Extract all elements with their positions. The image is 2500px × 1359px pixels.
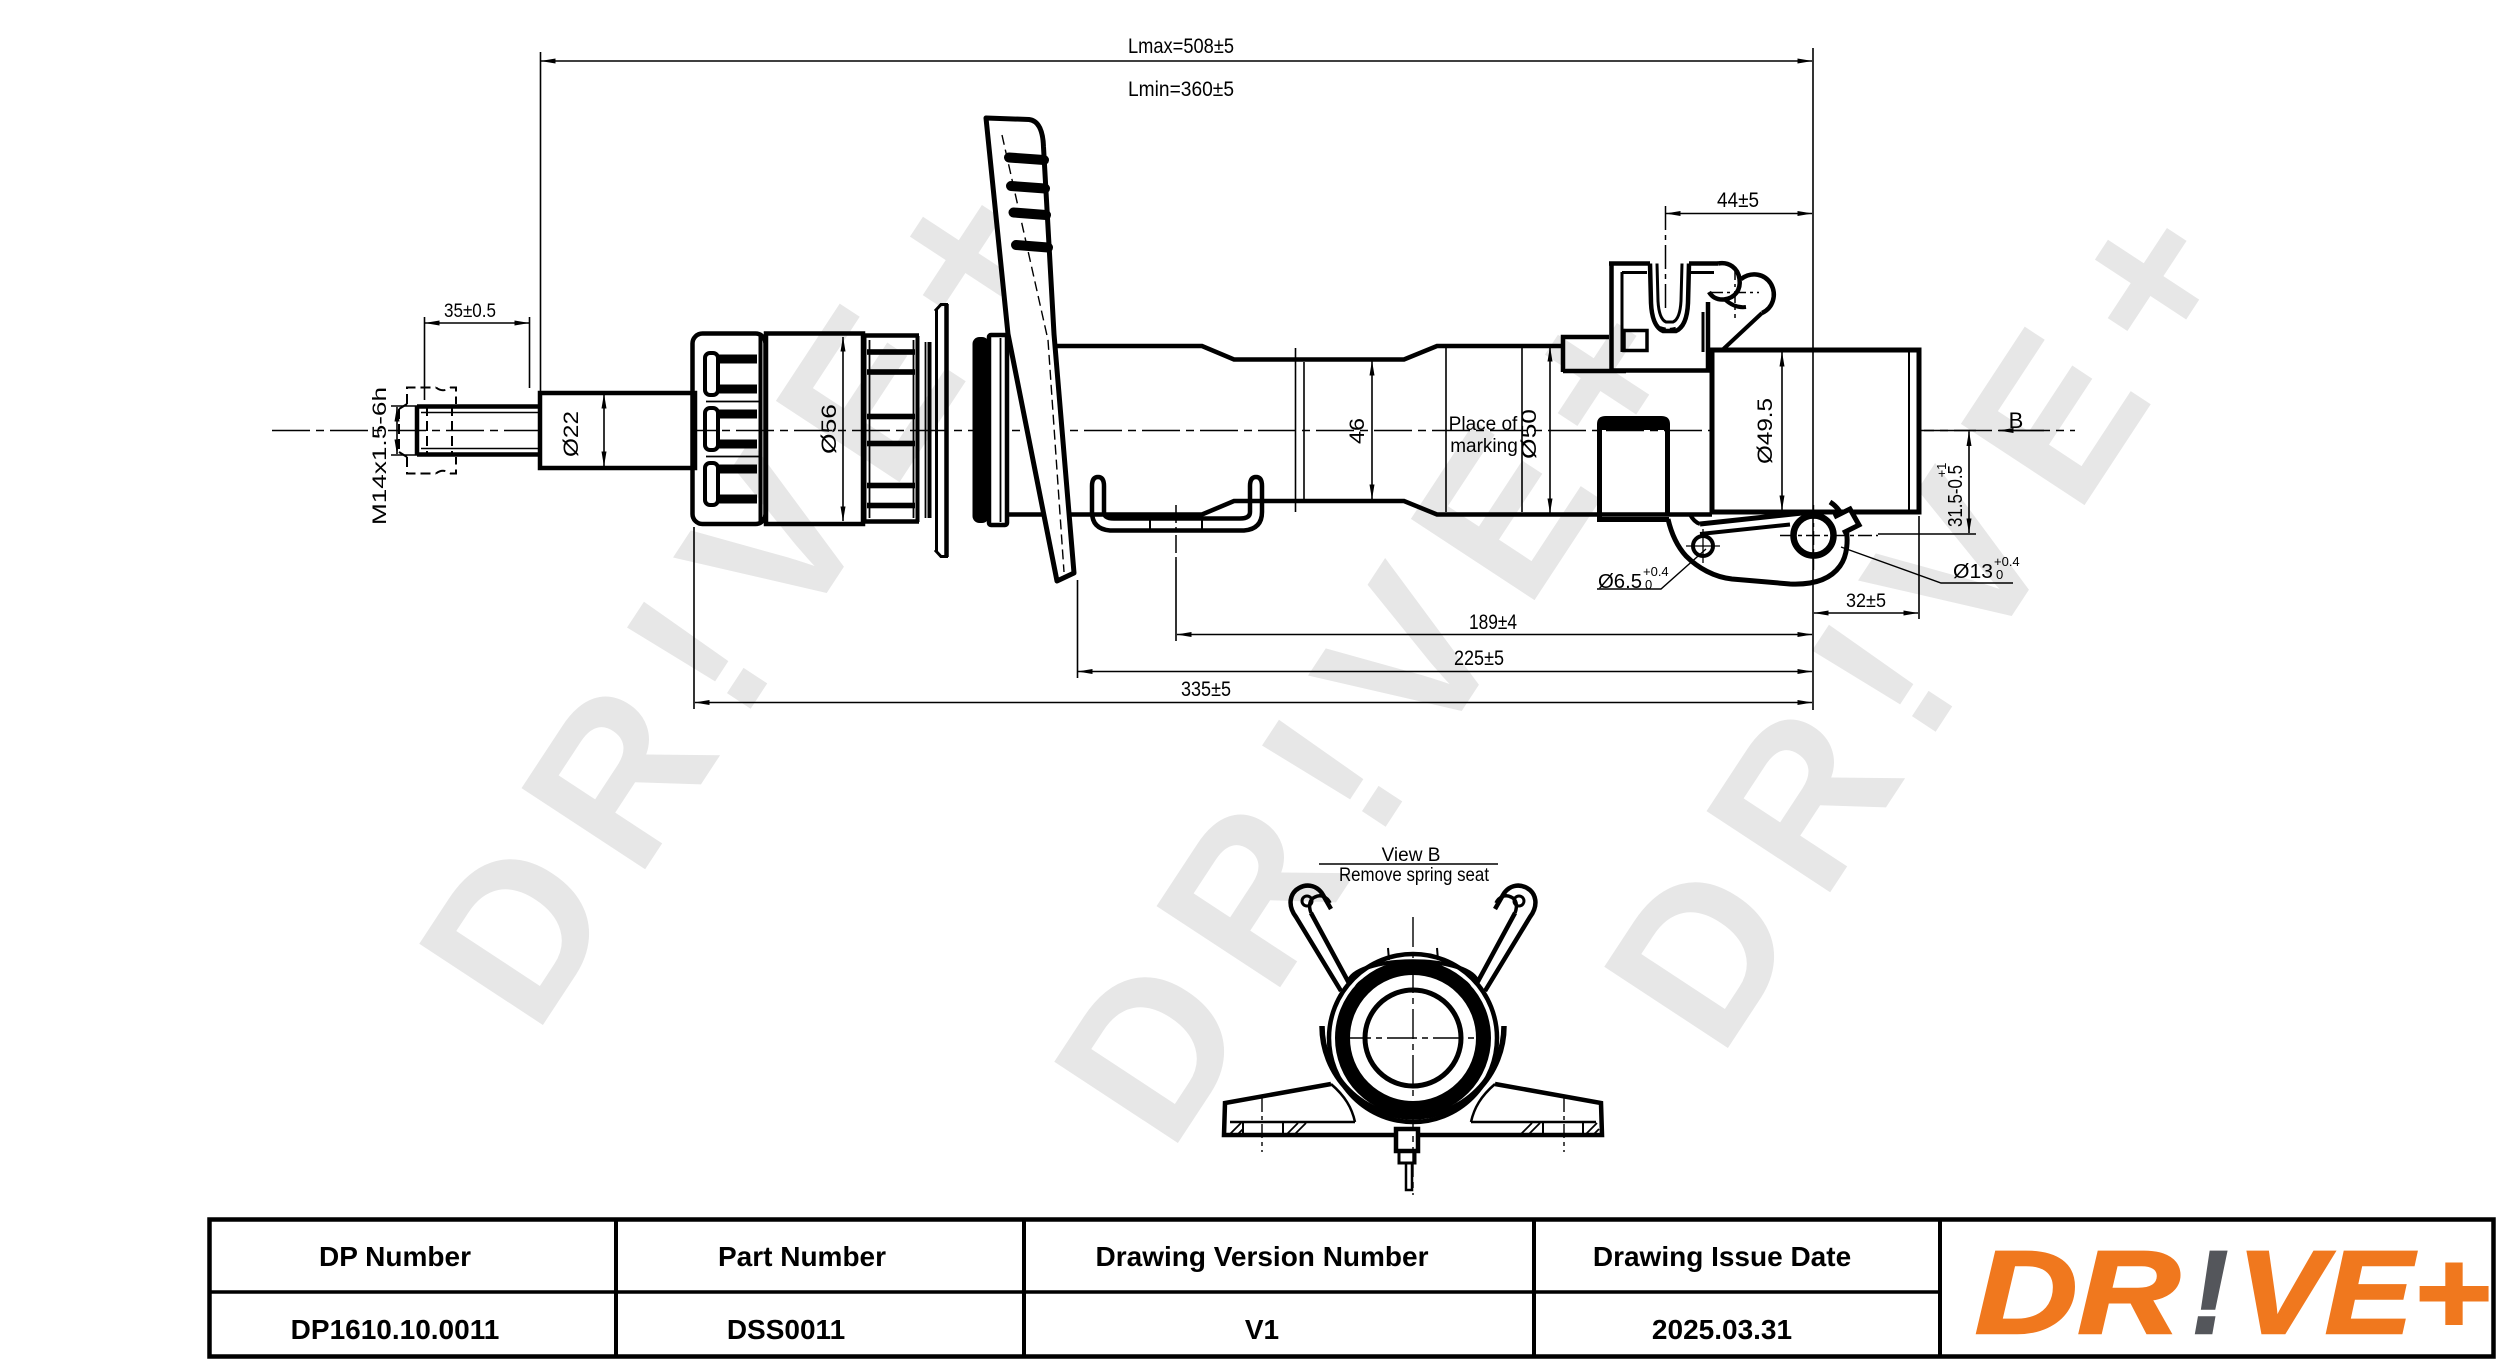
svg-text:V1: V1 bbox=[1245, 1314, 1279, 1345]
svg-text:+1: +1 bbox=[1934, 463, 1949, 478]
svg-text:DP Number: DP Number bbox=[319, 1241, 471, 1272]
svg-text:Ø13: Ø13 bbox=[1953, 561, 1993, 583]
svg-text:46: 46 bbox=[1346, 418, 1369, 444]
svg-text:Ø6.5: Ø6.5 bbox=[1598, 571, 1642, 593]
svg-text:DR: DR bbox=[1975, 1227, 2180, 1359]
svg-text:Lmax=508±5: Lmax=508±5 bbox=[1128, 35, 1234, 58]
svg-text:Lmin=360±5: Lmin=360±5 bbox=[1128, 78, 1234, 101]
svg-text:32±5: 32±5 bbox=[1846, 591, 1886, 612]
svg-text:!: ! bbox=[2192, 1227, 2228, 1359]
svg-text:Part Number: Part Number bbox=[718, 1241, 886, 1272]
svg-text:2025.03.31: 2025.03.31 bbox=[1652, 1314, 1792, 1345]
svg-text:0: 0 bbox=[1996, 567, 2003, 582]
svg-text:Ø56: Ø56 bbox=[818, 404, 841, 454]
svg-text:M14x1.5-6h: M14x1.5-6h bbox=[370, 387, 391, 525]
svg-text:VE+: VE+ bbox=[2237, 1227, 2490, 1359]
svg-text:0: 0 bbox=[1645, 577, 1652, 592]
svg-text:Remove spring seat: Remove spring seat bbox=[1339, 865, 1490, 886]
svg-text:Place of: Place of bbox=[1449, 414, 1518, 435]
svg-text:Ø50: Ø50 bbox=[1518, 409, 1541, 459]
svg-text:Drawing Issue Date: Drawing Issue Date bbox=[1593, 1241, 1851, 1272]
svg-text:DSS0011: DSS0011 bbox=[727, 1314, 845, 1345]
svg-text:marking: marking bbox=[1450, 436, 1518, 457]
svg-text:View B: View B bbox=[1382, 845, 1441, 866]
svg-text:Ø49.5: Ø49.5 bbox=[1754, 398, 1777, 464]
svg-text:DP1610.10.0011: DP1610.10.0011 bbox=[291, 1314, 500, 1345]
svg-text:Ø22: Ø22 bbox=[560, 411, 583, 457]
svg-text:35±0.5: 35±0.5 bbox=[444, 301, 496, 322]
svg-text:Drawing Version Number: Drawing Version Number bbox=[1096, 1241, 1429, 1272]
svg-text:189±4: 189±4 bbox=[1469, 611, 1517, 634]
svg-text:335±5: 335±5 bbox=[1181, 678, 1231, 701]
svg-text:44±5: 44±5 bbox=[1717, 189, 1759, 212]
svg-text:B: B bbox=[2009, 408, 2024, 433]
svg-text:225±5: 225±5 bbox=[1454, 647, 1504, 670]
